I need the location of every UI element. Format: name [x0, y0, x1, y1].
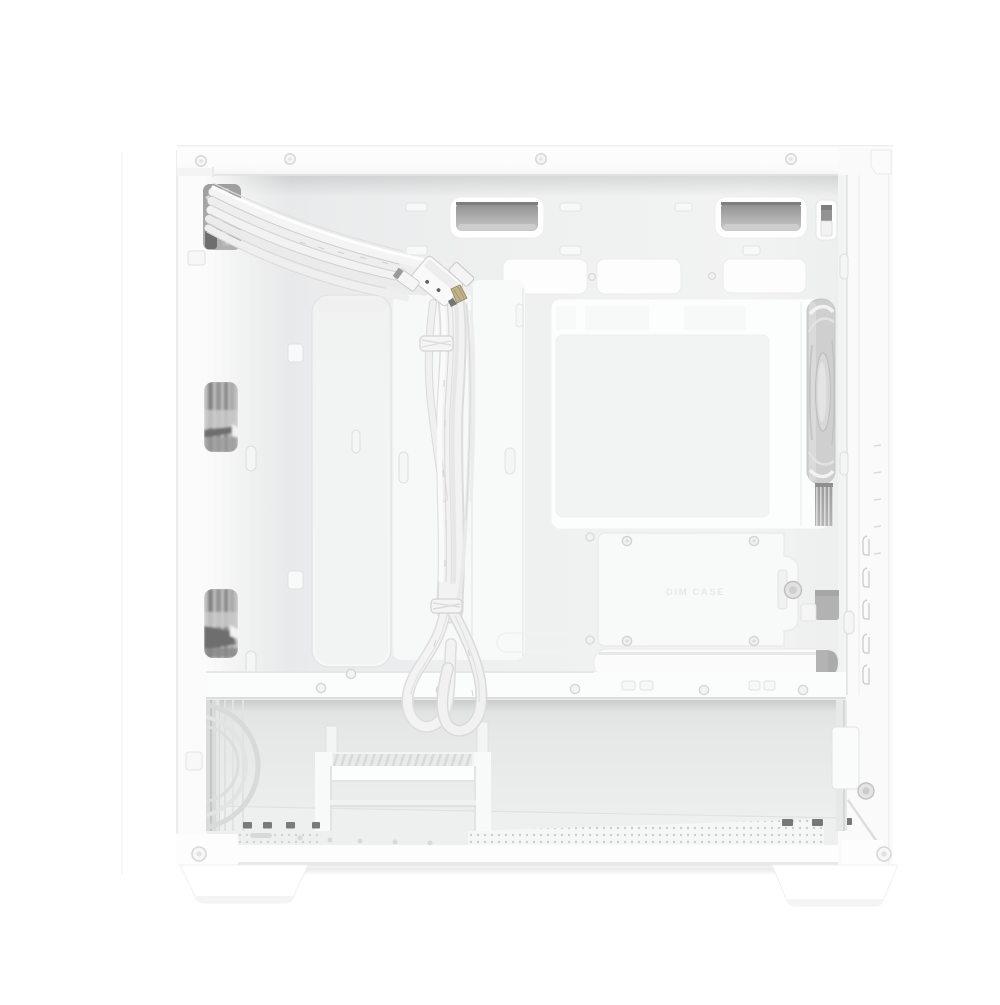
svg-text:DIM CASE: DIM CASE [666, 587, 725, 598]
